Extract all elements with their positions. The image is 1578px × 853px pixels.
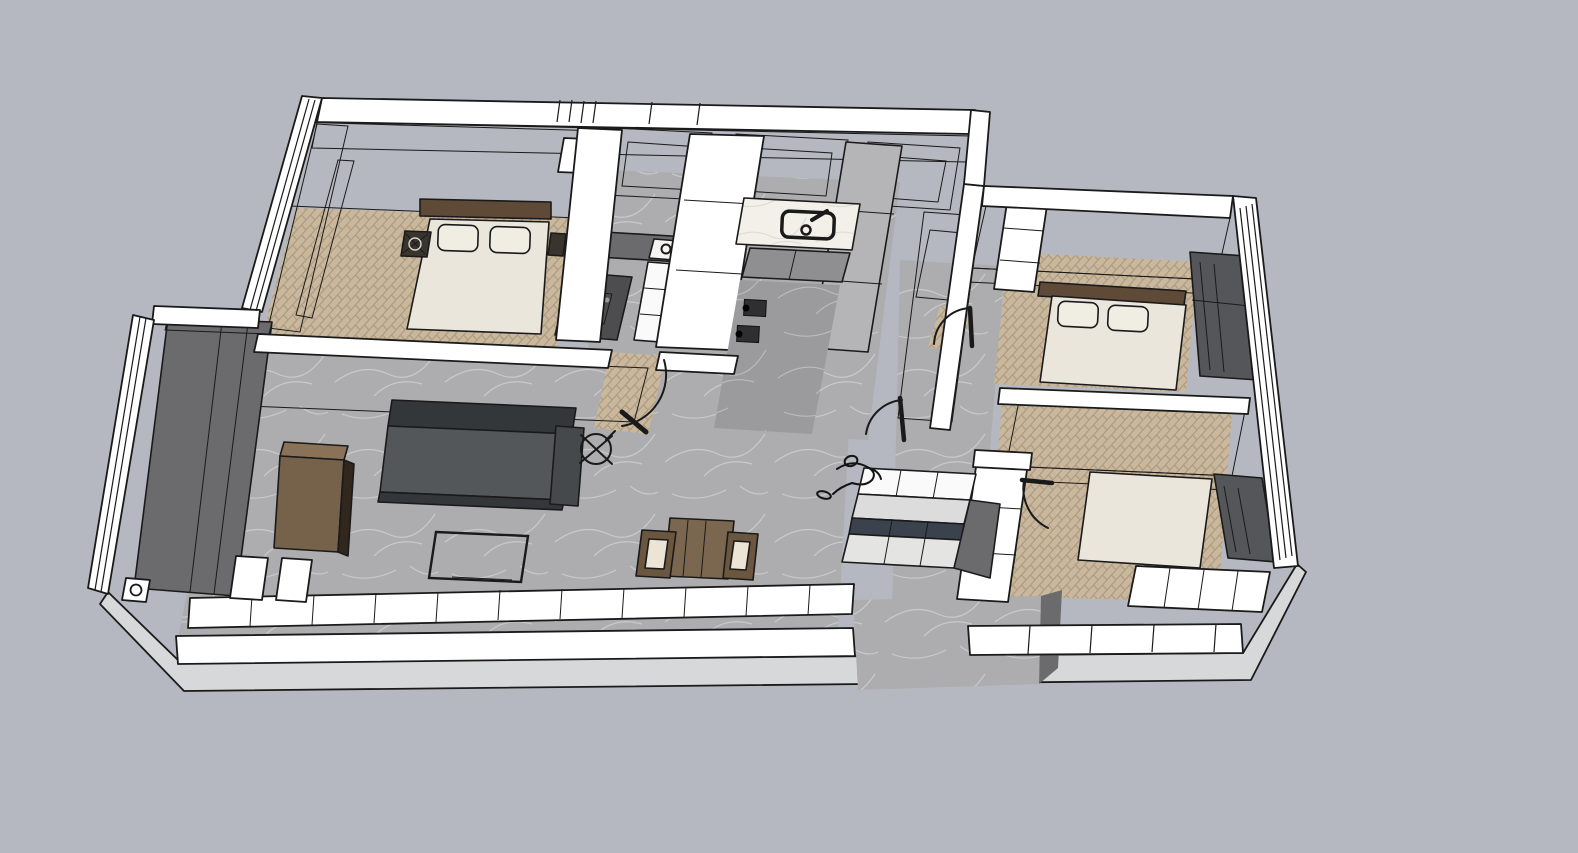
bed2-pillow-right [1107, 305, 1148, 332]
sink-counter-marble [736, 198, 860, 250]
wall-stub-2 [276, 558, 312, 602]
door-leaf-bedroom2 [970, 308, 972, 346]
bed1-pillow-right [490, 226, 531, 253]
bed2-pillow-left [1057, 301, 1098, 328]
wall-south-right [968, 624, 1243, 655]
wall-living-kitchen [656, 352, 738, 374]
sofa-armrest [550, 426, 584, 506]
door-stop-plate [122, 578, 150, 602]
wall-west-step [152, 306, 260, 328]
bed1-headboard [420, 199, 551, 219]
floor-plan-canvas[interactable] [0, 0, 1578, 853]
wall-stub-1 [230, 556, 268, 600]
island-lower-row [842, 534, 961, 568]
bed3-duvet [1078, 472, 1212, 568]
bed1-pillow-left [438, 224, 479, 251]
sofa-seat [380, 426, 572, 500]
peninsula-cabinet [742, 248, 850, 282]
bed1-nightstand-right [548, 233, 566, 256]
wall-stub-bedroom3 [973, 450, 1032, 470]
media-cabinet-front [274, 456, 344, 552]
model-viewport[interactable] [0, 0, 1578, 853]
chair-left-seat [645, 539, 668, 569]
chair-right-seat [730, 541, 750, 570]
door-leaf-bedroom3 [1022, 480, 1052, 483]
bin-knob-2 [736, 331, 743, 338]
bin-knob-1 [743, 305, 750, 312]
